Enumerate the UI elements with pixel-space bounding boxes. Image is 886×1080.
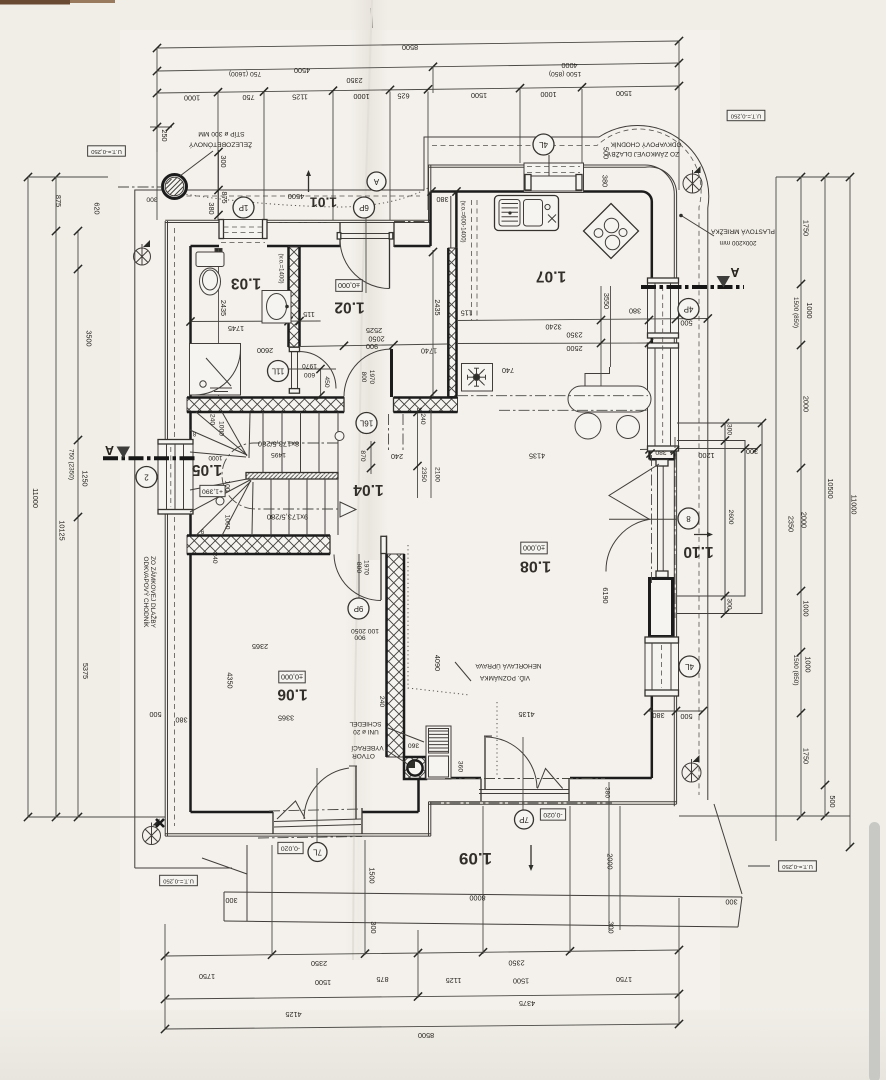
svg-text:600: 600: [304, 371, 315, 378]
svg-text:U.T.=-0,250: U.T.=-0,250: [730, 113, 761, 119]
svg-text:1.08: 1.08: [520, 558, 551, 575]
svg-text:1.10: 1.10: [683, 543, 713, 560]
svg-text:2000: 2000: [800, 512, 809, 528]
svg-text:9x173,5/280: 9x173,5/280: [267, 513, 308, 522]
svg-text:ZO ZÁMKOVEJ DLAŽBY: ZO ZÁMKOVEJ DLAŽBY: [149, 556, 158, 628]
svg-text:2000: 2000: [606, 853, 615, 869]
svg-text:300: 300: [225, 896, 237, 905]
svg-text:SCHIEDEL: SCHIEDEL: [349, 720, 381, 727]
svg-text:240: 240: [419, 413, 426, 424]
svg-text:STĺP ø 300 MM: STĺP ø 300 MM: [198, 130, 245, 139]
svg-text:740: 740: [502, 366, 514, 375]
svg-text:9P: 9P: [354, 604, 364, 613]
svg-text:1745: 1745: [228, 324, 244, 333]
svg-text:380: 380: [601, 175, 610, 187]
svg-text:200x200 mm: 200x200 mm: [720, 239, 757, 246]
svg-text:2435: 2435: [433, 299, 442, 315]
svg-text:500: 500: [828, 795, 837, 807]
svg-text:11000: 11000: [31, 488, 40, 508]
svg-text:1970: 1970: [368, 370, 375, 385]
svg-text:1.06: 1.06: [277, 686, 308, 703]
svg-text:8: 8: [686, 514, 691, 523]
svg-text:360: 360: [408, 742, 419, 749]
svg-text:4375: 4375: [519, 999, 535, 1008]
svg-text:1750: 1750: [616, 975, 632, 984]
svg-text:900: 900: [366, 342, 378, 351]
svg-text:625: 625: [397, 92, 409, 101]
svg-text:620: 620: [93, 202, 102, 214]
svg-text:4135: 4135: [518, 710, 534, 719]
svg-text:240: 240: [209, 414, 216, 425]
svg-text:10500: 10500: [826, 478, 835, 498]
svg-text:U.T.=-0,250: U.T.=-0,250: [781, 863, 812, 869]
svg-text:800: 800: [360, 372, 367, 383]
svg-text:U.T.=-0,250: U.T.=-0,250: [162, 878, 193, 884]
svg-text:1500 (850): 1500 (850): [792, 297, 799, 328]
svg-text:1500: 1500: [616, 89, 632, 98]
svg-text:2350: 2350: [508, 959, 524, 968]
svg-text:300: 300: [146, 196, 157, 203]
svg-text:2100: 2100: [434, 467, 441, 482]
svg-text:1500: 1500: [471, 91, 487, 100]
svg-text:8500: 8500: [418, 1031, 434, 1040]
svg-text:500: 500: [602, 147, 611, 159]
svg-text:6P: 6P: [359, 203, 369, 212]
svg-text:1000: 1000: [208, 454, 223, 461]
svg-text:875: 875: [54, 195, 63, 207]
svg-text:2: 2: [144, 473, 149, 482]
svg-text:4500: 4500: [288, 192, 305, 201]
svg-text:1500: 1500: [315, 978, 331, 987]
svg-text:5375: 5375: [81, 663, 90, 679]
svg-text:300: 300: [369, 921, 378, 933]
svg-text:1495: 1495: [271, 451, 286, 458]
svg-text:NEHORĽAVÁ ÚPRAVA: NEHORĽAVÁ ÚPRAVA: [475, 662, 542, 671]
svg-text:2350: 2350: [311, 959, 327, 968]
svg-text:4135: 4135: [529, 452, 545, 461]
svg-text:500: 500: [680, 319, 692, 328]
svg-text:750 (2350): 750 (2350): [68, 449, 75, 480]
svg-text:(v.o.=600-1400): (v.o.=600-1400): [460, 200, 466, 242]
svg-text:1125: 1125: [446, 976, 462, 985]
svg-text:2365: 2365: [252, 642, 268, 651]
svg-text:1.01: 1.01: [310, 195, 337, 211]
svg-text:115: 115: [461, 309, 473, 318]
svg-text:8500: 8500: [402, 43, 418, 52]
svg-text:4L: 4L: [539, 140, 548, 149]
svg-text:1970: 1970: [302, 362, 317, 369]
svg-text:1750: 1750: [199, 972, 215, 981]
svg-text:2600: 2600: [727, 510, 734, 525]
svg-text:UNI ø 20: UNI ø 20: [353, 728, 379, 735]
svg-text:1000: 1000: [184, 94, 200, 103]
svg-text:115: 115: [303, 310, 315, 319]
svg-text:2525: 2525: [366, 326, 382, 335]
svg-text:450: 450: [323, 376, 330, 387]
svg-text:4350: 4350: [226, 672, 235, 688]
svg-text:OTVOR: OTVOR: [352, 752, 375, 759]
svg-text:1750: 1750: [802, 748, 811, 764]
svg-text:3365: 3365: [278, 714, 294, 723]
svg-text:1.03: 1.03: [231, 275, 262, 292]
svg-text:1.07: 1.07: [536, 268, 566, 285]
svg-text:11000: 11000: [850, 495, 859, 515]
svg-text:±0,000: ±0,000: [338, 281, 360, 290]
svg-text:2350: 2350: [346, 76, 362, 85]
svg-text:±0,000: ±0,000: [281, 673, 303, 682]
svg-text:11L: 11L: [271, 367, 284, 376]
svg-text:1970: 1970: [363, 560, 370, 575]
svg-text:4500: 4500: [294, 66, 310, 75]
svg-text:750: 750: [242, 93, 254, 102]
svg-text:240: 240: [391, 452, 403, 461]
svg-text:300: 300: [725, 898, 737, 907]
svg-text:800: 800: [355, 562, 362, 573]
svg-text:-0,020: -0,020: [543, 811, 562, 818]
svg-text:1060: 1060: [224, 515, 231, 530]
svg-text:-0,020: -0,020: [281, 845, 300, 852]
svg-text:1.02: 1.02: [334, 299, 364, 316]
svg-text:500: 500: [680, 712, 692, 721]
svg-text:A: A: [730, 265, 739, 279]
svg-text:2435: 2435: [219, 300, 228, 316]
svg-text:A: A: [373, 177, 379, 186]
svg-text:7P: 7P: [519, 815, 529, 824]
svg-text:240: 240: [378, 696, 385, 707]
svg-text:ŽELEZOBETÓNOVÝ: ŽELEZOBETÓNOVÝ: [188, 141, 252, 150]
svg-text:1.04: 1.04: [353, 481, 384, 498]
svg-text:ODKVAPOVÝ CHODNÍK: ODKVAPOVÝ CHODNÍK: [610, 141, 682, 150]
svg-text:2350: 2350: [566, 331, 582, 340]
svg-text:16L: 16L: [359, 419, 373, 428]
svg-text:(v.o.=1400): (v.o.=1400): [278, 253, 284, 283]
svg-text:8000: 8000: [469, 894, 485, 903]
svg-text:380: 380: [207, 202, 216, 214]
svg-text:1125: 1125: [292, 93, 308, 102]
svg-text:1000: 1000: [805, 302, 814, 318]
svg-text:1.05: 1.05: [192, 461, 223, 478]
svg-text:250: 250: [160, 129, 169, 141]
svg-text:2600: 2600: [257, 346, 273, 355]
svg-text:6190: 6190: [601, 587, 610, 603]
svg-text:1200: 1200: [698, 451, 714, 460]
svg-text:1000: 1000: [218, 421, 225, 436]
svg-text:1000: 1000: [540, 90, 556, 99]
svg-text:+1,390: +1,390: [202, 488, 223, 495]
svg-text:240: 240: [211, 552, 218, 563]
svg-text:±0,000: ±0,000: [523, 544, 545, 553]
svg-text:3240: 3240: [545, 323, 561, 332]
svg-text:1500 (850): 1500 (850): [792, 655, 799, 686]
svg-text:300: 300: [726, 424, 733, 435]
svg-text:875: 875: [220, 191, 229, 203]
svg-text:4L: 4L: [685, 662, 694, 671]
svg-text:300: 300: [607, 921, 616, 933]
svg-text:380: 380: [652, 711, 664, 720]
svg-text:VIĎ. POZNÁMKA: VIĎ. POZNÁMKA: [479, 674, 530, 683]
svg-text:870: 870: [359, 450, 366, 461]
svg-text:1P: 1P: [239, 203, 249, 212]
svg-text:3500: 3500: [85, 330, 94, 346]
svg-text:1000: 1000: [353, 92, 369, 101]
svg-text:1500: 1500: [513, 977, 529, 986]
svg-text:1500: 1500: [368, 867, 377, 883]
svg-text:300: 300: [746, 447, 758, 456]
svg-text:7L: 7L: [313, 848, 322, 857]
svg-text:A: A: [105, 443, 114, 457]
svg-text:8: 8: [192, 430, 196, 437]
svg-text:3550: 3550: [602, 293, 611, 309]
svg-text:500: 500: [149, 710, 161, 719]
svg-text:300: 300: [726, 598, 733, 609]
svg-text:2000: 2000: [802, 396, 811, 412]
svg-text:100 2050: 100 2050: [351, 627, 379, 634]
svg-text:4125: 4125: [285, 1010, 301, 1019]
svg-text:2350: 2350: [787, 516, 796, 532]
svg-text:4P: 4P: [684, 305, 694, 314]
svg-text:380: 380: [175, 716, 187, 725]
svg-text:2350: 2350: [420, 467, 427, 482]
svg-text:300: 300: [219, 155, 228, 167]
svg-text:PLASTOVÁ MRIEŽKA: PLASTOVÁ MRIEŽKA: [710, 228, 775, 237]
svg-text:9: 9: [200, 528, 204, 535]
svg-text:380: 380: [436, 195, 448, 204]
svg-text:1500 (850): 1500 (850): [549, 70, 581, 77]
svg-text:1000: 1000: [804, 656, 813, 672]
svg-text:1.09: 1.09: [459, 849, 492, 868]
svg-text:2500: 2500: [566, 344, 582, 353]
svg-text:ZO ZÁMKOVEJ DLAŽBY: ZO ZÁMKOVEJ DLAŽBY: [606, 150, 678, 159]
svg-text:100: 100: [224, 480, 231, 491]
svg-text:380: 380: [629, 307, 641, 316]
svg-text:360: 360: [457, 761, 464, 772]
svg-text:1750: 1750: [802, 220, 811, 236]
svg-text:U.T.=-0,250: U.T.=-0,250: [90, 148, 121, 154]
svg-text:875: 875: [376, 975, 388, 984]
svg-text:1250: 1250: [81, 470, 90, 486]
svg-text:10125: 10125: [58, 520, 67, 540]
svg-text:8x173,5/280: 8x173,5/280: [258, 440, 299, 449]
svg-text:750 (1600): 750 (1600): [229, 70, 261, 77]
svg-text:1000: 1000: [802, 600, 811, 616]
svg-text:1740: 1740: [421, 347, 437, 356]
svg-text:4090: 4090: [433, 655, 442, 671]
svg-text:380: 380: [655, 449, 666, 456]
svg-text:VYBERACÍ: VYBERACÍ: [351, 744, 384, 753]
svg-text:4000: 4000: [561, 61, 577, 70]
